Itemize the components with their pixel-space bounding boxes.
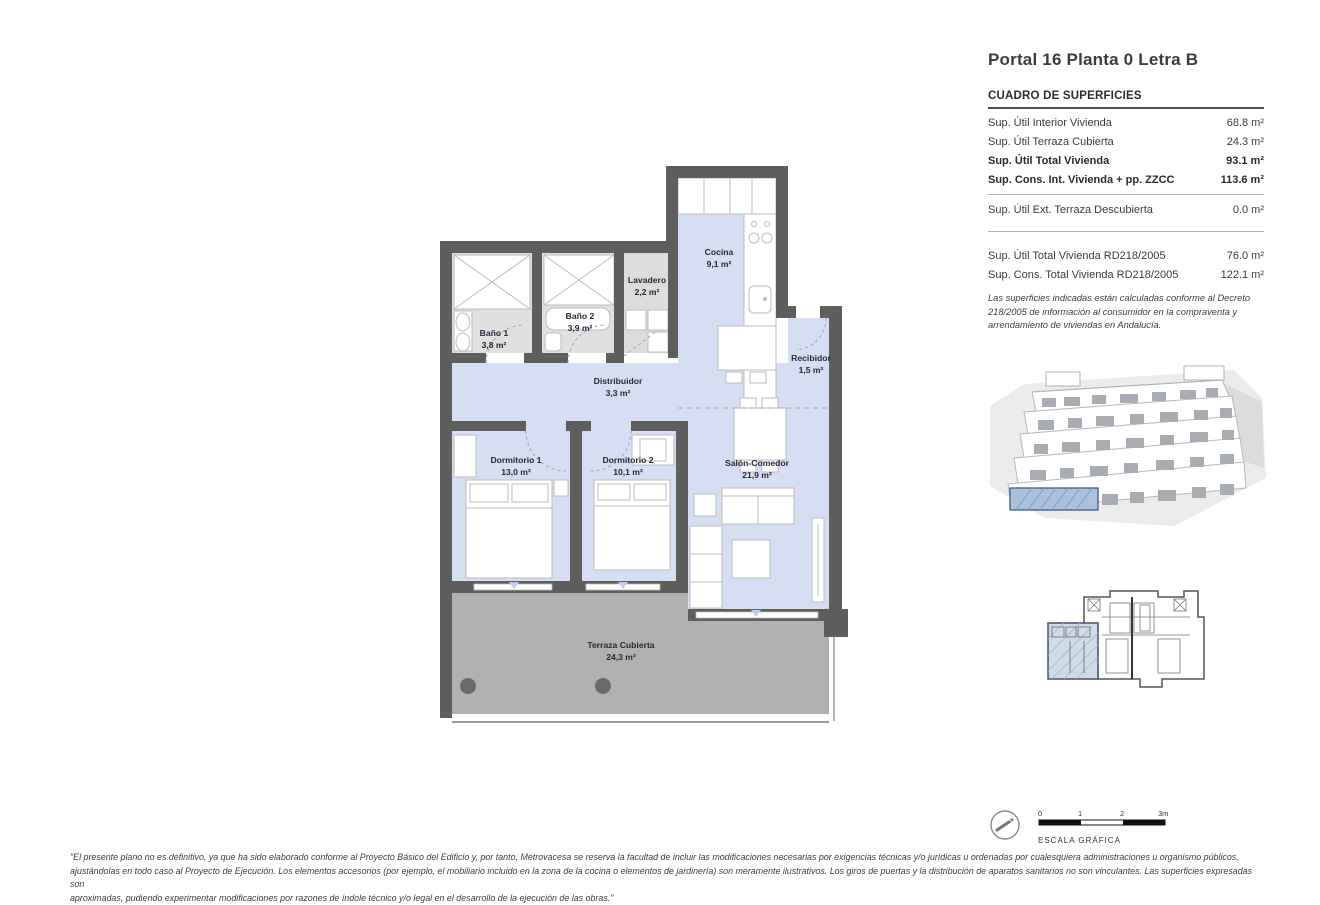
table-row: Sup. Útil Interior Vivienda 68.8 m² [988, 113, 1264, 132]
room-label-distribuidor: Distribuidor [594, 376, 643, 386]
room-label-dormitorio1: Dormitorio 1 [490, 455, 541, 465]
key-plan-highlight [1048, 623, 1098, 679]
scale-tick-0: 0 [1038, 809, 1042, 818]
key-plan [1040, 583, 1212, 701]
page-title: Portal 16 Planta 0 Letra B [988, 50, 1198, 70]
table-row: Sup. Útil Ext. Terraza Descubierta 0.0 m… [988, 200, 1264, 219]
room-area-terraza: 24,3 m² [606, 652, 636, 662]
disclaimer: "El presente plano no es definitivo, ya … [70, 851, 1260, 905]
scale-bar-graphic: 0 1 2 3m [1038, 808, 1178, 830]
disclaimer-line: "El presente plano no es definitivo, ya … [70, 851, 1260, 865]
room-label-lavadero: Lavadero [628, 275, 666, 285]
building-render [984, 358, 1268, 540]
room-label-terraza: Terraza Cubierta [587, 640, 654, 650]
table-row: Sup. Útil Terraza Cubierta 24.3 m² [988, 132, 1264, 151]
terrace-column [595, 678, 611, 694]
room-label-bano2: Baño 2 [566, 311, 595, 321]
scale-label: ESCALA GRÁFICA [1038, 836, 1178, 845]
surface-table-note: Las superficies indicadas están calculad… [988, 292, 1264, 333]
floor-plan: Cocina 9,1 m² Lavadero 2,2 m² Baño 2 3,9… [426, 158, 886, 743]
room-area-bano2: 3,9 m² [568, 323, 593, 333]
surface-table-header: CUADRO DE SUPERFICIES [988, 90, 1264, 109]
room-area-salon: 21,9 m² [742, 470, 772, 480]
table-separator [988, 194, 1264, 195]
table-row: Sup. Cons. Int. Vivienda + pp. ZZCC 113.… [988, 170, 1264, 189]
room-area-dormitorio2: 10,1 m² [613, 467, 643, 477]
room-area-bano1: 3,8 m² [482, 340, 507, 350]
room-label-cocina: Cocina [705, 247, 734, 257]
room-area-cocina: 9,1 m² [707, 259, 732, 269]
table-row: Sup. Útil Total Vivienda 93.1 m² [988, 151, 1264, 170]
disclaimer-line: ajustándolas en todo caso al Proyecto de… [70, 865, 1260, 892]
table-row: Sup. Cons. Total Vivienda RD218/2005 122… [988, 265, 1264, 284]
scale-tick-2: 2 [1120, 809, 1124, 818]
room-area-lavadero: 2,2 m² [635, 287, 660, 297]
room-label-recibidor: Recibidor [791, 353, 831, 363]
room-label-bano1: Baño 1 [480, 328, 509, 338]
disclaimer-line: aproximadas, pudiendo experimentar modif… [70, 892, 1260, 905]
room-area-dormitorio1: 13,0 m² [501, 467, 531, 477]
surface-table: CUADRO DE SUPERFICIES Sup. Útil Interior… [988, 90, 1264, 333]
room-label-dormitorio2: Dormitorio 2 [602, 455, 653, 465]
scale-tick-3: 3m [1158, 809, 1168, 818]
room-area-distribuidor: 3,3 m² [606, 388, 631, 398]
table-separator [988, 231, 1264, 232]
room-area-recibidor: 1,5 m² [799, 365, 824, 375]
scale-tick-1: 1 [1078, 809, 1082, 818]
table-row: Sup. Útil Total Vivienda RD218/2005 76.0… [988, 246, 1264, 265]
room-label-salon: Salón-Comedor [725, 458, 790, 468]
highlighted-unit [1010, 488, 1098, 510]
scale-bar: 0 1 2 3m ESCALA GRÁFICA [1038, 808, 1178, 845]
compass-icon [986, 806, 1024, 844]
terrace-column [460, 678, 476, 694]
